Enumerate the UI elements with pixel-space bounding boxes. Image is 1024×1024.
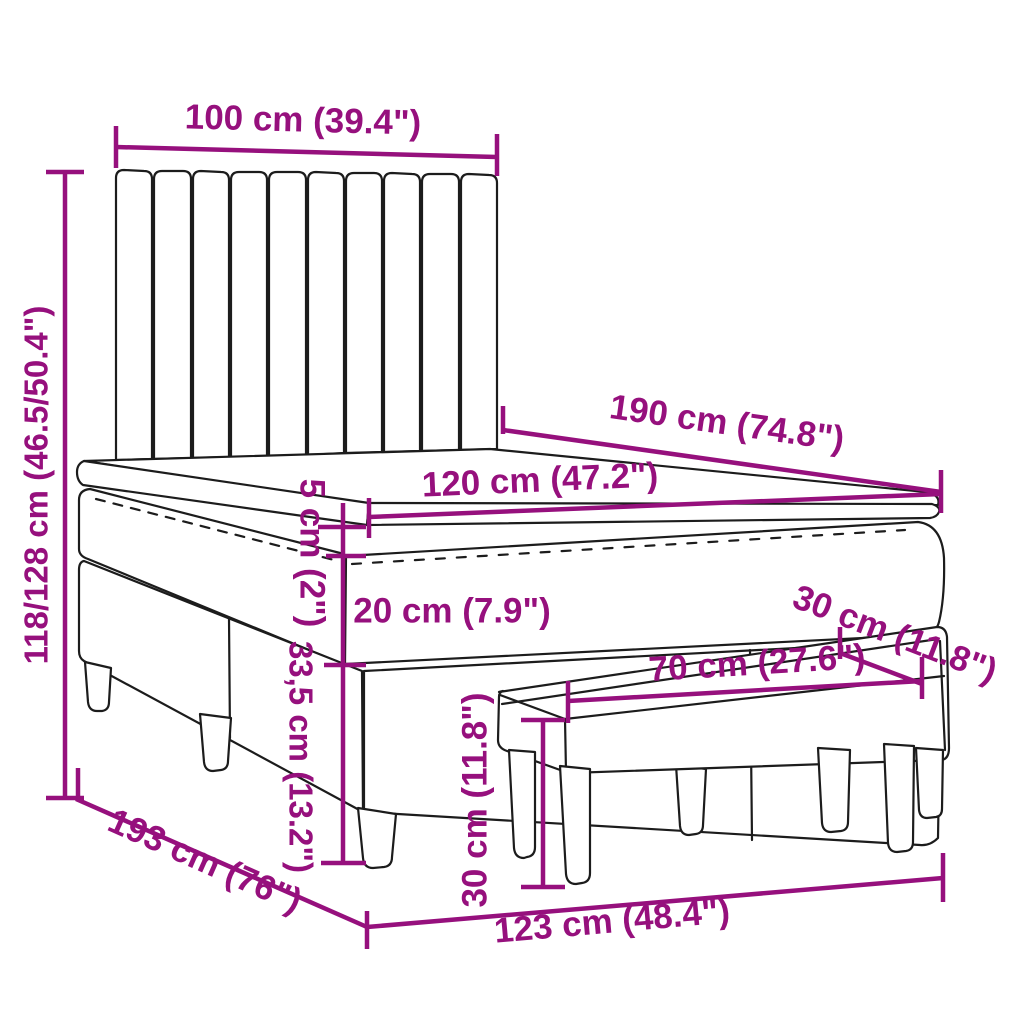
bed-leg [676,765,706,835]
bench-leg [916,748,943,818]
bed-leg [85,662,111,711]
mattress-height-label: 20 cm (7.9") [353,592,551,631]
headboard [116,170,497,460]
base-length-label: 123 cm (48.4") [493,891,732,950]
bench-height-label: 30 cm (11.8") [456,692,495,907]
dimension-headboard-width: 100 cm (39.4") [116,97,497,176]
dimension-base-length: 123 cm (48.4") [367,853,943,951]
bed-leg [358,808,396,868]
topper-height-label: 5 cm (2") [293,479,332,628]
bed-height-label: 118/128 cm (46.5/50.4") [18,306,55,665]
diagram-canvas: 100 cm (39.4") 118/128 cm (46.5/50.4") 1… [0,0,1024,1024]
furniture-line-art [77,170,949,884]
box-height-label: 33,5 cm (13.2") [283,641,320,873]
bed-dimension-diagram: 100 cm (39.4") 118/128 cm (46.5/50.4") 1… [0,0,1024,1024]
bed-leg [200,714,231,771]
bench-leg [560,766,590,884]
bench-leg [509,750,535,858]
bench-leg [818,748,850,832]
bench-leg [884,744,914,852]
dimension-bed-height: 118/128 cm (46.5/50.4") [18,172,85,798]
bench-corner-edge [565,719,566,772]
headboard-width-label: 100 cm (39.4") [184,97,421,142]
frame-length-label: 193 cm (76") [102,801,307,921]
dimension-frame-length: 193 cm (76") [76,768,367,949]
